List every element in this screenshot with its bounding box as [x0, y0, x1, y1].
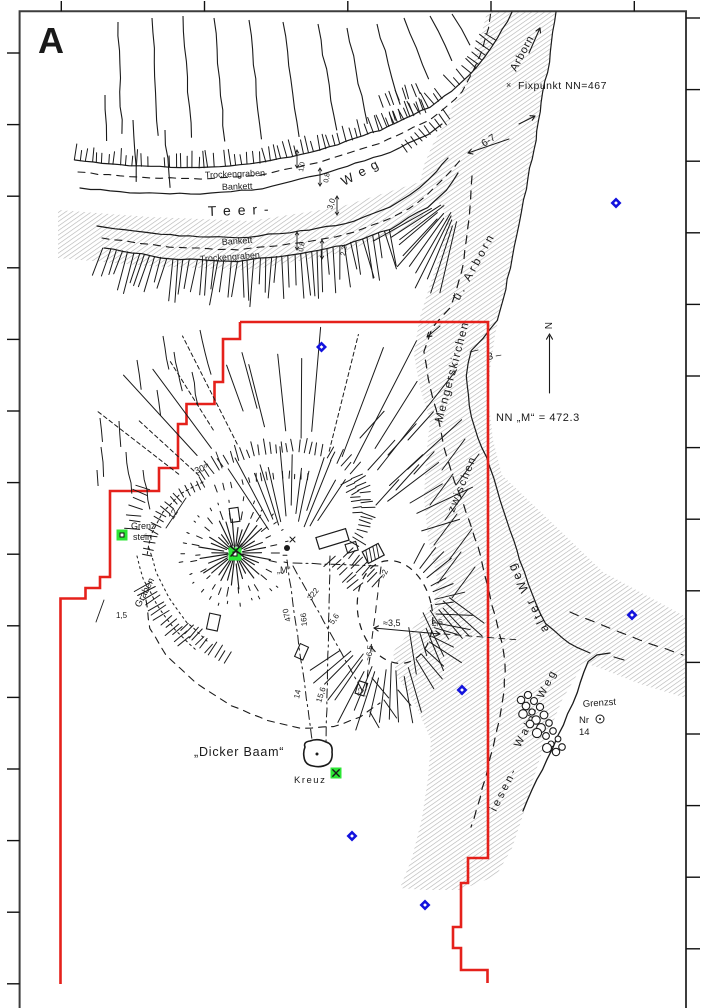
- svg-text:NN „M“ = 472.3: NN „M“ = 472.3: [496, 412, 580, 424]
- svg-text:stein: stein: [133, 532, 152, 542]
- svg-text:„Dicker Baam“: „Dicker Baam“: [194, 745, 284, 759]
- svg-text:2,5: 2,5: [431, 617, 444, 628]
- svg-text:Trockengraben: Trockengraben: [205, 168, 266, 180]
- svg-text:Bankett: Bankett: [222, 181, 253, 192]
- svg-text:Grenzst: Grenzst: [582, 697, 616, 710]
- svg-text:Fixpunkt NN=467: Fixpunkt NN=467: [518, 80, 607, 92]
- svg-text:14: 14: [579, 727, 590, 738]
- svg-text:T e e r -: T e e r -: [208, 201, 271, 219]
- svg-text:Nr: Nr: [579, 715, 589, 726]
- svg-text:N: N: [542, 322, 553, 329]
- svg-text:Grenz: Grenz: [131, 521, 156, 531]
- svg-text:×: ×: [506, 80, 511, 90]
- svg-text:≈3,5: ≈3,5: [383, 618, 400, 628]
- svg-text:1,5: 1,5: [116, 611, 128, 620]
- svg-text:A: A: [38, 20, 64, 61]
- svg-text:Kreuz: Kreuz: [294, 775, 326, 786]
- svg-text:166: 166: [299, 612, 309, 627]
